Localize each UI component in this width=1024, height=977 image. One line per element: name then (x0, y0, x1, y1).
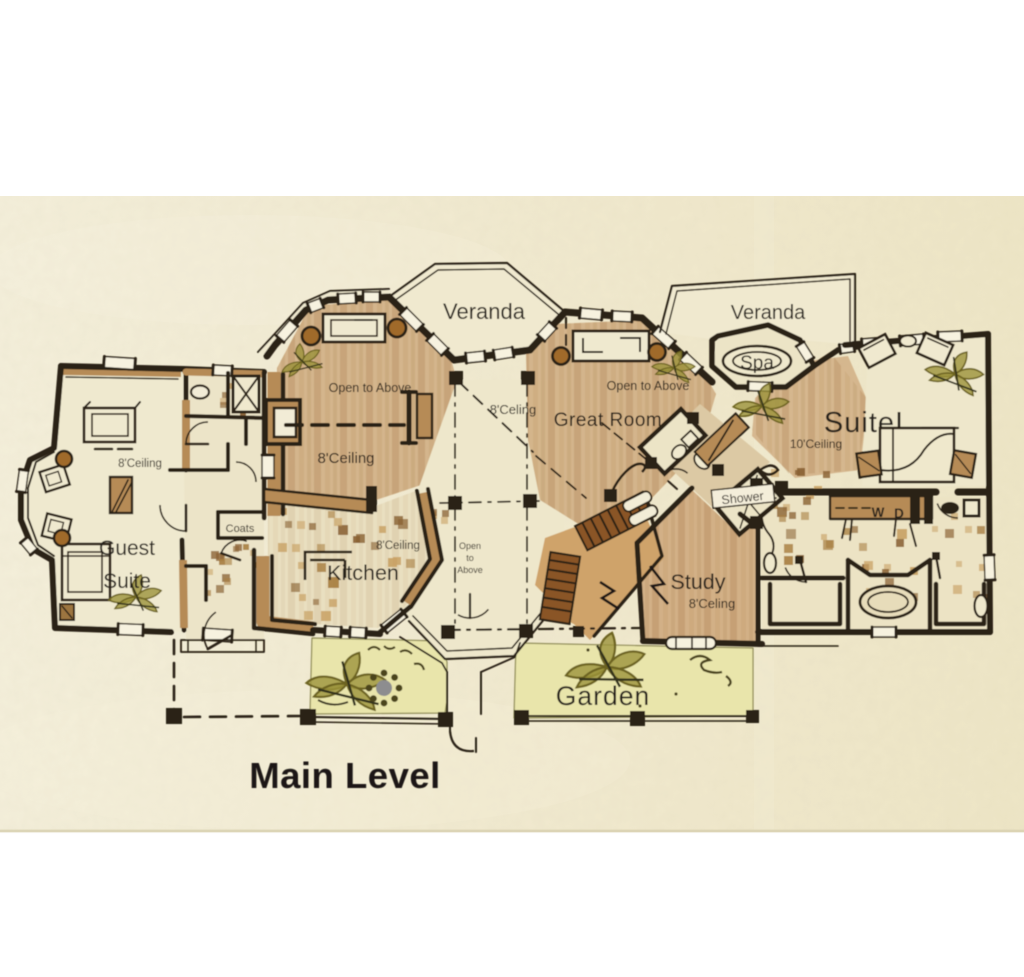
svg-text:8'Ceiling: 8'Ceiling (317, 450, 374, 467)
svg-text:Veranda: Veranda (731, 302, 806, 324)
svg-text:Open: Open (459, 541, 481, 551)
svg-text:10'Ceiling: 10'Ceiling (790, 437, 842, 451)
svg-text:Study: Study (671, 570, 726, 594)
svg-text:Above: Above (457, 565, 483, 575)
svg-text:Suite: Suite (103, 570, 151, 593)
svg-text:8'Celing: 8'Celing (490, 402, 537, 417)
svg-text:Spa: Spa (740, 353, 774, 374)
svg-text:Veranda: Veranda (443, 299, 526, 324)
svg-text:Open to Above: Open to Above (607, 379, 690, 393)
svg-text:8'Ceiling: 8'Ceiling (118, 458, 162, 470)
svg-text:8'Ceiling: 8'Ceiling (376, 540, 420, 552)
svg-text:Guest: Guest (99, 537, 155, 560)
svg-text:Main Level: Main Level (249, 755, 441, 796)
svg-text:to: to (466, 553, 474, 563)
svg-text:Kitchen: Kitchen (327, 561, 399, 585)
svg-text:Garden: Garden (556, 681, 650, 711)
svg-text:Open to Above: Open to Above (329, 381, 412, 395)
svg-text:8'Celing: 8'Celing (689, 596, 736, 611)
svg-text:Coats: Coats (226, 523, 255, 535)
svg-text:W: W (872, 505, 885, 520)
